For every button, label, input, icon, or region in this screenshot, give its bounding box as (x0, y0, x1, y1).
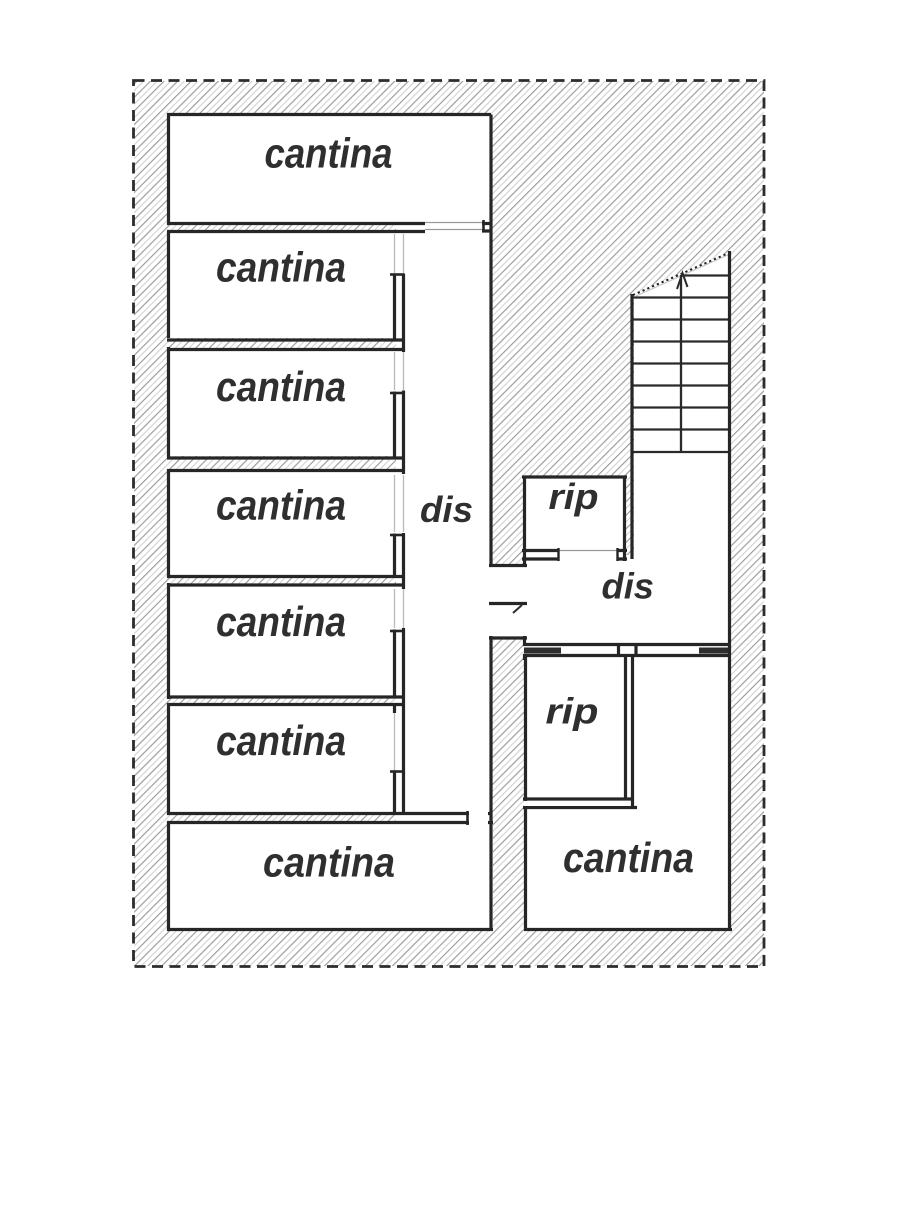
svg-text:cantina: cantina (216, 717, 346, 764)
svg-text:rip: rip (549, 476, 599, 517)
svg-text:cantina: cantina (563, 834, 694, 881)
svg-text:rip: rip (546, 691, 599, 732)
svg-text:cantina: cantina (263, 839, 395, 886)
svg-text:cantina: cantina (216, 363, 346, 410)
svg-text:dis: dis (420, 489, 473, 530)
svg-text:cantina: cantina (216, 482, 346, 529)
svg-text:dis: dis (602, 566, 655, 607)
svg-text:cantina: cantina (265, 130, 393, 177)
svg-text:cantina: cantina (216, 244, 346, 291)
svg-text:cantina: cantina (216, 598, 346, 645)
